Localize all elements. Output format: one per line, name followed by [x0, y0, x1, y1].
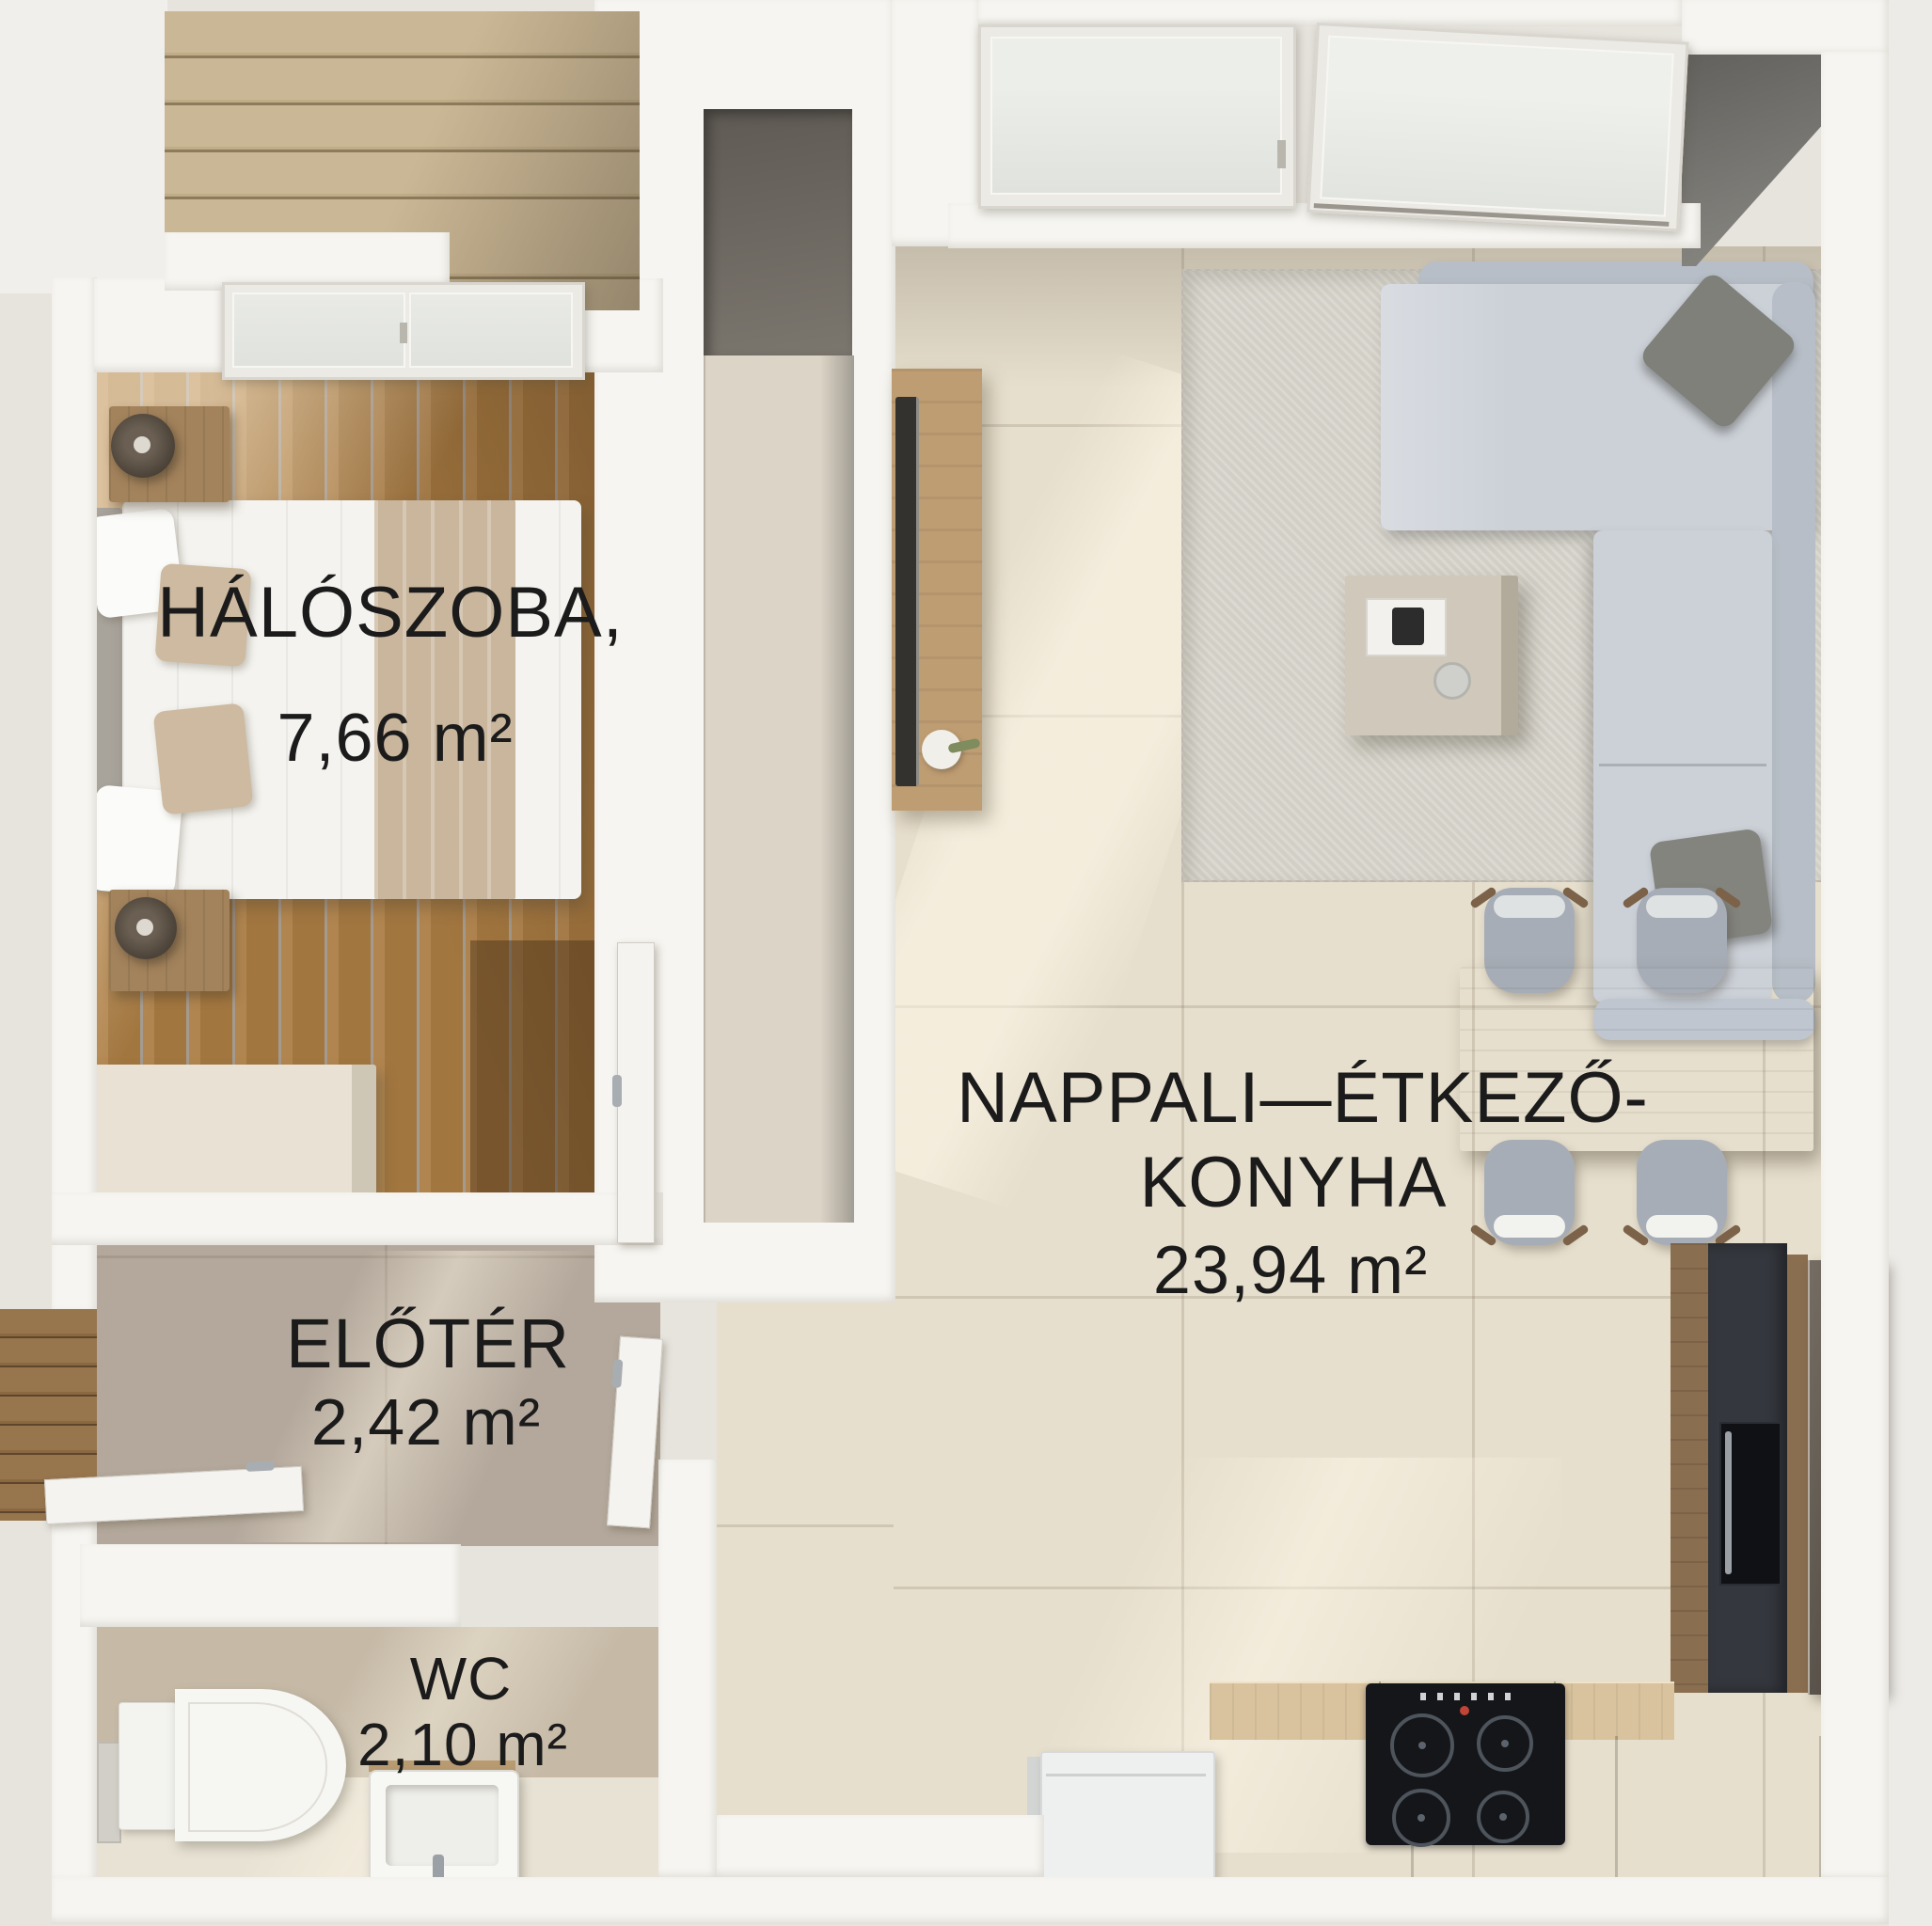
bedroom-door-leaf — [617, 942, 655, 1243]
hob-burner-3 — [1392, 1789, 1450, 1847]
wc-sink — [369, 1770, 519, 1892]
tv-screen — [895, 397, 919, 786]
bed-pillow-beige-bottom — [153, 703, 254, 814]
white-appliance — [1040, 1751, 1215, 1881]
entry-door-handle — [245, 1460, 274, 1472]
induction-hob — [1366, 1683, 1565, 1845]
coffee-table-tray — [1366, 598, 1447, 656]
wall-gray-wedge — [1682, 55, 1825, 266]
toilet-tank — [119, 1702, 177, 1830]
bedroom-window — [222, 282, 585, 380]
wall-bedroom-bottom — [52, 1192, 663, 1245]
living-label-area: 23,94 m² — [1153, 1232, 1428, 1309]
bedroom-window-glass-left — [232, 292, 405, 368]
wall-living-right — [1821, 52, 1889, 1881]
living-label-name-line2: KONYHA — [1140, 1142, 1448, 1223]
coffee-table-cup — [1433, 662, 1471, 700]
lamp-bottom-bulb — [136, 919, 153, 936]
lamp-top-bulb — [134, 436, 150, 453]
bedroom-label-area: 7,66 m² — [277, 700, 513, 777]
kitchen-tall-wood-strip-2 — [1787, 1255, 1808, 1693]
wall-left-upper — [52, 277, 97, 1317]
living-window-left-handle — [1277, 140, 1286, 168]
living-label-name-line1: NAPPALI—ÉTKEZŐ- — [957, 1057, 1649, 1139]
wc-sink-basin — [386, 1785, 499, 1866]
toilet-seat-line — [188, 1702, 327, 1832]
wc-label-area: 2,10 m² — [357, 1710, 568, 1779]
sofa-seat-seam — [1599, 764, 1766, 766]
bedroom-window-handle — [400, 323, 407, 343]
corridor-closet-edge — [820, 355, 854, 1223]
wall-baseboard-bottomleft — [717, 1815, 1044, 1877]
bedroom-dresser — [70, 1065, 376, 1194]
floor-plan: HÁLÓSZOBA, 7,66 m² NAPPALI—ÉTKEZŐ- KONYH… — [0, 0, 1932, 1926]
wall-bottom — [52, 1877, 1889, 1924]
dining-chair-bottom-right — [1637, 1140, 1727, 1245]
wall-wc-right — [658, 1460, 717, 1879]
bedroom-floor-dark-corner — [470, 940, 594, 1192]
bedroom-door-handle — [612, 1075, 622, 1107]
wc-door-handle — [611, 1359, 623, 1388]
foyer-label-name: ELŐTÉR — [286, 1303, 570, 1383]
living-window-right-tilted — [1306, 23, 1688, 231]
exterior-top-left — [0, 0, 167, 293]
hob-burner-2 — [1477, 1715, 1533, 1772]
corridor-closet-front — [704, 355, 854, 1223]
kitchen-tall-wood-strip-1 — [1671, 1243, 1708, 1693]
exterior-right-band — [1889, 0, 1932, 1926]
corridor-niche-recess — [704, 109, 852, 355]
hob-burner-4 — [1477, 1791, 1529, 1843]
sofa-back-right — [1772, 282, 1815, 1002]
living-window-right-glass — [1320, 36, 1674, 217]
living-floor-extension — [717, 1300, 894, 1815]
living-window-left — [978, 24, 1296, 209]
hob-controls — [1420, 1693, 1511, 1700]
dining-chair-bottom-left — [1484, 1140, 1575, 1245]
toilet-bowl — [175, 1689, 346, 1841]
oven-handle — [1725, 1431, 1732, 1574]
foyer-label-area: 2,42 m² — [311, 1384, 541, 1460]
living-window-left-glass — [990, 37, 1282, 195]
wall-wc-top — [80, 1544, 461, 1627]
wall-living-topright-block — [1682, 0, 1889, 56]
tray-item — [1392, 608, 1424, 645]
appliance-lid-seam — [1046, 1774, 1206, 1776]
hob-power-dot — [1460, 1706, 1469, 1715]
wc-label-name: WC — [410, 1644, 513, 1713]
hob-burner-1 — [1390, 1713, 1454, 1777]
bedroom-window-glass-right — [409, 292, 573, 368]
bedroom-label-name: HÁLÓSZOBA, — [157, 572, 624, 654]
